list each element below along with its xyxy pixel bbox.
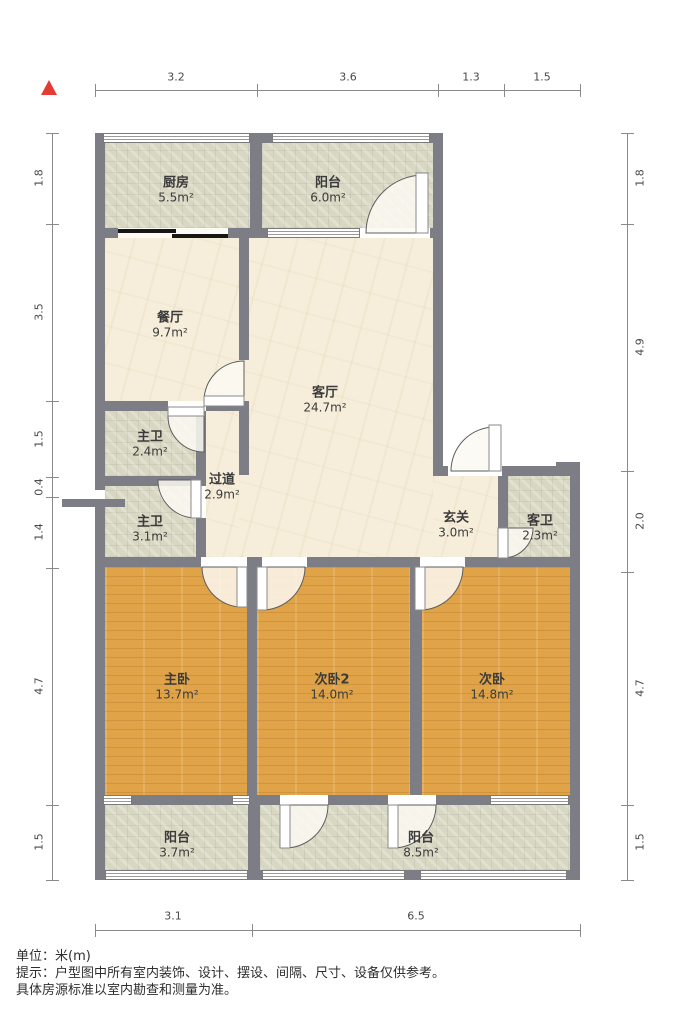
window: [103, 795, 132, 805]
door-leaf: [489, 425, 501, 471]
tick: [621, 805, 634, 806]
dimension-label: 0.4: [33, 478, 46, 496]
tick: [46, 805, 59, 806]
wall: [239, 401, 249, 475]
room-label-guest-bath: 客卫2.3m²: [522, 514, 558, 543]
north-arrow: [41, 80, 57, 95]
tick: [46, 401, 59, 402]
wall: [62, 499, 125, 507]
window: [272, 133, 430, 143]
tick: [621, 224, 634, 225]
room-label-bedroom-2: 次卧214.0m²: [310, 673, 353, 702]
tick: [257, 84, 258, 97]
dimension-label: 1.5: [33, 430, 46, 448]
room-label-bedroom-3: 次卧14.8m²: [470, 673, 513, 702]
dimension-label: 4.7: [634, 679, 647, 697]
footer-notes: 单位：米(m) 提示：户型图中所有室内装饰、设计、摆设、间隔、尺寸、设备仅供参考…: [16, 948, 445, 999]
disclaimer-line-1: 提示：户型图中所有室内装饰、设计、摆设、间隔、尺寸、设备仅供参考。: [16, 965, 445, 982]
tick: [46, 880, 59, 881]
room-label-balcony-top: 阳台6.0m²: [310, 176, 346, 205]
tick: [46, 568, 59, 569]
room-label-master-bath-1: 主卫2.4m²: [132, 430, 168, 459]
wall: [95, 133, 105, 880]
dimension-label: 4.7: [33, 677, 46, 695]
room-label-master-bedroom: 主卧13.7m²: [155, 673, 198, 702]
dimension-line-bottom: [95, 930, 581, 931]
tick: [438, 84, 439, 97]
dimension-label: 1.3: [462, 71, 480, 84]
dimension-label: 6.5: [407, 910, 425, 923]
dimension-label: 3.5: [33, 303, 46, 321]
room-label-kitchen: 厨房5.5m²: [158, 176, 194, 205]
sliding-door-icon: [118, 229, 176, 233]
tick: [580, 924, 581, 937]
dimension-label: 1.4: [33, 523, 46, 541]
room-label-balcony-left: 阳台3.7m²: [159, 831, 195, 860]
wall: [465, 557, 580, 567]
tick: [46, 133, 59, 134]
wall: [196, 411, 206, 478]
tick: [504, 84, 505, 97]
tick: [46, 224, 59, 225]
wall: [433, 133, 443, 476]
dimension-label: 1.5: [533, 71, 551, 84]
wall: [250, 133, 262, 238]
dimension-label: 1.5: [33, 833, 46, 851]
door-leaf: [498, 528, 508, 558]
dimension-line-top: [95, 90, 581, 91]
dimension-label: 1.8: [634, 169, 647, 187]
window: [105, 870, 248, 880]
disclaimer-line-2: 具体房源标准以室内勘查和测量为准。: [16, 982, 445, 999]
window: [267, 228, 360, 238]
unit-note: 单位：米(m): [16, 948, 445, 965]
room-label-corridor: 过道2.9m²: [204, 473, 240, 502]
tick: [95, 84, 96, 97]
room-label-dining: 餐厅9.7m²: [152, 311, 188, 340]
room-label-master-bath-2: 主卫3.1m²: [132, 515, 168, 544]
wall: [410, 567, 422, 795]
window: [262, 870, 405, 880]
sliding-door-icon: [172, 234, 228, 238]
dimension-line-left: [52, 133, 53, 880]
door-arc: [451, 427, 495, 471]
dimension-label: 3.2: [167, 71, 185, 84]
wall: [196, 518, 206, 557]
tick: [580, 84, 581, 97]
room-label-balcony-right: 阳台8.5m²: [403, 831, 439, 860]
dimension-label: 3.6: [339, 71, 357, 84]
wall: [95, 557, 201, 567]
tick: [621, 471, 634, 472]
wall: [247, 567, 257, 795]
tick: [621, 133, 634, 134]
window: [420, 870, 567, 880]
tick: [252, 924, 253, 937]
wall: [239, 228, 249, 360]
dimension-label: 1.5: [634, 833, 647, 851]
floorplan-page: { "meta": { "unit_note": "单位：米(m)", "dis…: [0, 0, 676, 1024]
wall: [498, 476, 508, 528]
wall-gap: [88, 490, 105, 499]
room-floor-balcony-top: [262, 143, 433, 228]
wall: [328, 795, 388, 805]
window: [232, 795, 250, 805]
dimension-line-right: [627, 133, 628, 880]
tick: [46, 477, 59, 478]
room-label-living: 客厅24.7m²: [303, 386, 346, 415]
tick: [621, 572, 634, 573]
wall: [247, 557, 262, 567]
room-label-entry: 玄关3.0m²: [438, 511, 474, 540]
dimension-label: 2.0: [634, 512, 647, 530]
dimension-label: 4.9: [634, 338, 647, 356]
tick: [621, 880, 634, 881]
wall: [248, 805, 260, 880]
window: [103, 133, 250, 143]
dimension-label: 3.1: [164, 910, 182, 923]
wall: [307, 557, 420, 567]
window: [490, 795, 569, 805]
tick: [95, 924, 96, 937]
dimension-label: 1.8: [33, 169, 46, 187]
tick: [46, 497, 59, 498]
wall: [95, 401, 168, 411]
wall: [570, 466, 580, 880]
wall: [95, 476, 206, 486]
